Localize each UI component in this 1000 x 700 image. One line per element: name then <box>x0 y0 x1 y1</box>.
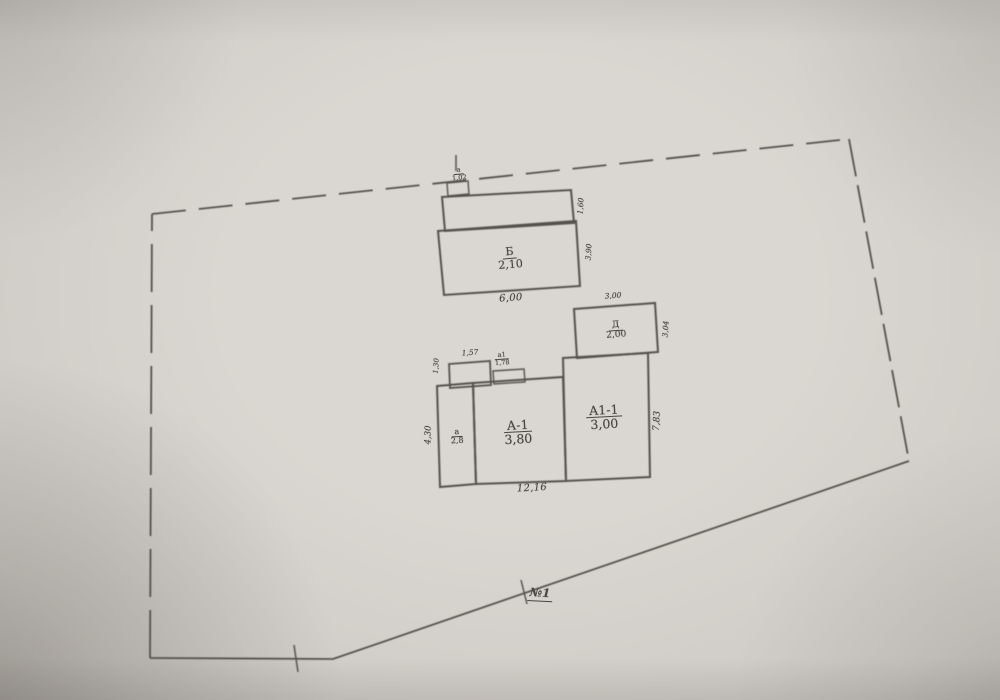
building-b-height: 2,10 <box>498 257 523 271</box>
dim-main-depth: 7,83 <box>653 411 663 432</box>
scanned-site-plan: Б 2,10 6,00 1,60 3,90 а 1,02 3,00 Д 2,00… <box>0 0 1000 700</box>
porch-top-size: 1,02 <box>452 174 467 182</box>
dim-shed-width: 3,00 <box>604 291 621 300</box>
dim-proj-width: 1,57 <box>461 348 478 357</box>
parcel-point-number: №1 <box>527 585 552 602</box>
porch-a1-label: а1 1,78 <box>494 351 509 367</box>
room-a11-height: 3,00 <box>590 417 618 432</box>
room-left-label: а 2,8 <box>450 428 464 446</box>
room-a1-height: 3,80 <box>504 432 532 447</box>
room-a1-label: А-1 3,80 <box>503 418 532 447</box>
parcel-boundary <box>150 139 909 659</box>
building-b-outline <box>438 181 580 295</box>
dim-main-width: 12,16 <box>517 483 548 495</box>
parcel-point-label: №1 <box>527 583 552 601</box>
dim-b-width: 6,00 <box>499 293 523 305</box>
boundary-tick-marks <box>294 155 527 672</box>
room-a11-label: А1-1 3,00 <box>586 402 623 431</box>
building-b-label: Б 2,10 <box>497 245 524 271</box>
dim-b-strip-depth: 1,60 <box>576 197 585 214</box>
porch-top-label: а 1,02 <box>451 166 467 182</box>
dim-b-depth: 3,90 <box>584 243 593 260</box>
porch-a1-size: 1,78 <box>495 359 510 367</box>
room-left-height: 2,8 <box>451 437 464 446</box>
dim-room-left-depth: 4,30 <box>424 425 434 444</box>
shed-height: 2,00 <box>606 331 627 342</box>
shed-label: Д 2,00 <box>605 320 626 341</box>
dim-shed-depth: 3,04 <box>661 320 670 337</box>
dim-proj-depth: 1,30 <box>433 358 441 374</box>
